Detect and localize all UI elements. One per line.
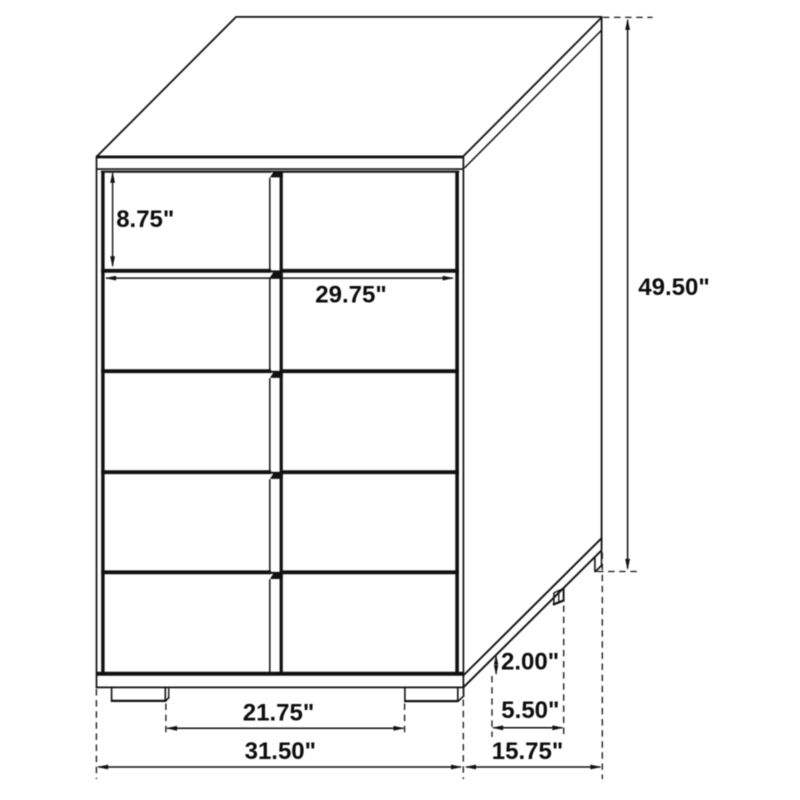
- svg-text:2.00": 2.00": [501, 648, 559, 675]
- svg-text:49.50": 49.50": [638, 274, 709, 301]
- svg-text:29.75": 29.75": [315, 282, 386, 309]
- svg-text:31.50": 31.50": [245, 738, 316, 765]
- svg-text:5.50": 5.50": [501, 697, 559, 724]
- svg-text:21.75": 21.75": [243, 700, 314, 727]
- svg-text:15.75": 15.75": [492, 738, 563, 765]
- svg-text:8.75": 8.75": [116, 206, 174, 233]
